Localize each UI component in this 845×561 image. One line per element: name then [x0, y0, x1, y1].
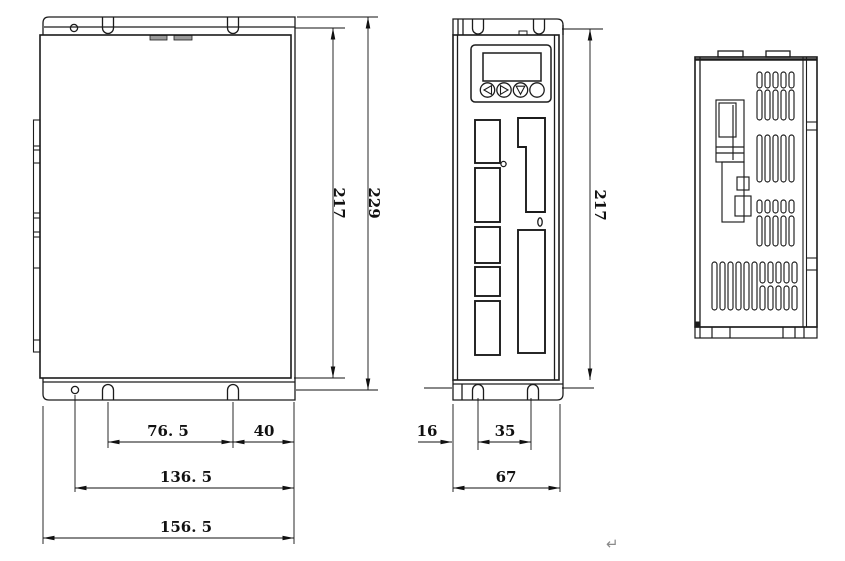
vent-slot	[792, 262, 797, 283]
rear-view	[695, 51, 817, 338]
keyhole-notch	[473, 19, 484, 34]
keyhole-notch	[534, 19, 545, 34]
rear-body-outline	[695, 57, 817, 327]
top-tab	[174, 36, 192, 41]
vent-slot	[728, 262, 733, 310]
dim-label-76-5: 76. 5	[147, 422, 189, 440]
vent-slot	[720, 262, 725, 310]
vent-slot	[765, 72, 770, 88]
vent-slot	[757, 135, 762, 182]
rear-connector-assembly	[716, 100, 751, 222]
vent-group-top	[757, 72, 794, 120]
vent-slot	[752, 262, 757, 310]
vent-slot	[773, 90, 778, 120]
vent-slot	[789, 200, 794, 213]
body-outline	[40, 35, 291, 378]
side-view	[34, 17, 296, 400]
vent-slot	[760, 286, 765, 310]
vent-slot	[776, 262, 781, 283]
vent-slot	[760, 262, 765, 283]
vent-slot	[773, 200, 778, 213]
mounting-hole	[70, 24, 77, 31]
vent-slot	[757, 200, 762, 213]
vent-slot	[768, 262, 773, 283]
vent-slot	[784, 286, 789, 310]
vent-slot	[757, 72, 762, 88]
vent-slot	[781, 135, 786, 182]
keyhole-notch	[473, 385, 484, 400]
mounting-hole	[71, 386, 78, 393]
keyhole-notch	[103, 385, 114, 400]
dim-label-229: 229	[365, 187, 383, 218]
dim-label-16: 16	[417, 422, 438, 440]
top-tab	[766, 51, 790, 57]
technical-drawing-page: 217 229 76. 5 40 136. 5 156. 5	[0, 0, 845, 561]
vent-slot	[773, 135, 778, 182]
paragraph-mark-icon: ↵	[606, 535, 619, 553]
dim-label-217: 217	[330, 187, 348, 218]
vent-slot	[789, 90, 794, 120]
vent-slot	[781, 72, 786, 88]
front-flange-top	[453, 19, 563, 35]
top-tab	[718, 51, 743, 57]
vent-slot	[765, 216, 770, 246]
keyhole-notch	[228, 17, 239, 34]
dim-label-156-5: 156. 5	[160, 518, 212, 536]
vent-group-bottom	[712, 262, 797, 310]
vent-slot	[784, 262, 789, 283]
vent-slot	[765, 135, 770, 182]
vent-slot	[768, 286, 773, 310]
front-view	[453, 19, 563, 400]
rear-flange-strip	[803, 57, 817, 327]
rear-feet	[695, 322, 817, 339]
top-tab	[150, 36, 167, 41]
keyhole-notch	[103, 17, 114, 34]
vent-slot	[773, 72, 778, 88]
dim-label-35: 35	[495, 422, 516, 440]
vent-slot	[776, 286, 781, 310]
dim-label-136-5: 136. 5	[160, 468, 212, 486]
vent-slot	[765, 200, 770, 213]
dim-label-67: 67	[496, 468, 517, 486]
vent-slot	[757, 216, 762, 246]
keyhole-notch	[528, 385, 539, 400]
vent-slot	[712, 262, 717, 310]
vent-slot	[781, 200, 786, 213]
vent-slot	[773, 216, 778, 246]
side-connector-strip	[34, 120, 41, 352]
vent-slot	[781, 216, 786, 246]
vent-group-small	[757, 200, 794, 246]
vent-group-mid	[757, 135, 794, 182]
vent-slot	[744, 262, 749, 310]
vent-slot	[781, 90, 786, 120]
dim-label-217: 217	[591, 189, 609, 220]
vent-slot	[789, 216, 794, 246]
vent-slot	[792, 286, 797, 310]
vent-slot	[765, 90, 770, 120]
vent-slot	[789, 72, 794, 88]
front-flange-bottom	[453, 380, 563, 400]
keyhole-notch	[228, 385, 239, 400]
dimension-drawing: 217 229 76. 5 40 136. 5 156. 5	[0, 0, 845, 561]
vent-slot	[736, 262, 741, 310]
vent-slot	[757, 90, 762, 120]
dim-label-40: 40	[254, 422, 275, 440]
vent-slot	[789, 135, 794, 182]
